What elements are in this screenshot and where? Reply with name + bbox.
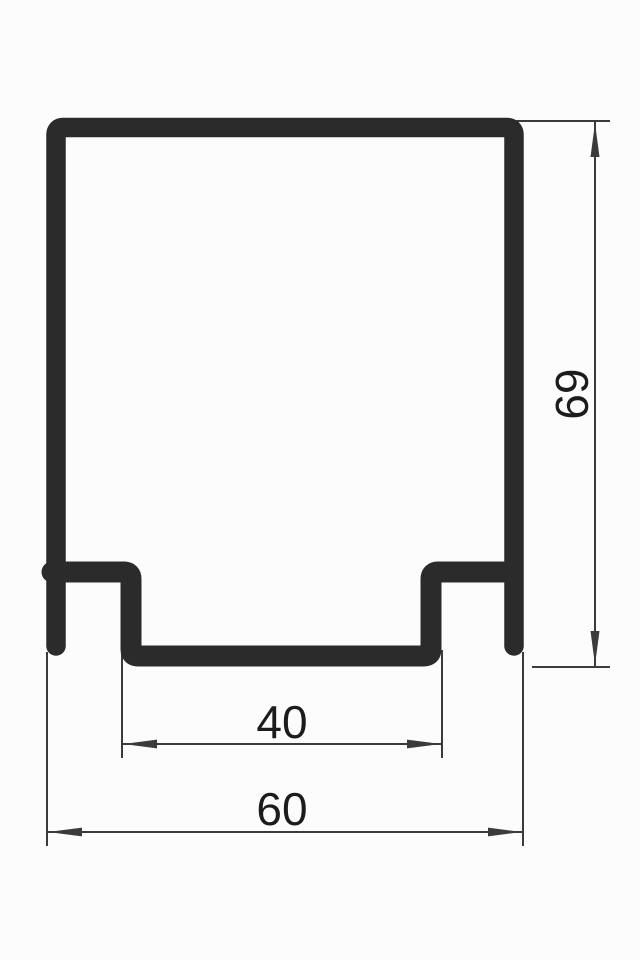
dimension-label-overall-width: 60 [256,783,307,835]
arrowhead-right [407,740,441,749]
arrowhead-down [591,631,600,665]
dimension-label-height: 69 [546,368,598,419]
arrowhead-left [123,740,157,749]
dimension-overall-width: 60 [47,652,523,846]
arrowhead-right [488,828,522,837]
profile-drawing: 69 40 60 [0,0,640,960]
drawing-canvas: 69 40 60 [0,0,640,960]
profile-bottom-channel-path [52,572,510,656]
arrowhead-left [48,828,82,837]
profile-body [52,128,514,657]
arrowhead-up [591,123,600,157]
dimension-label-slot-width: 40 [256,696,307,748]
